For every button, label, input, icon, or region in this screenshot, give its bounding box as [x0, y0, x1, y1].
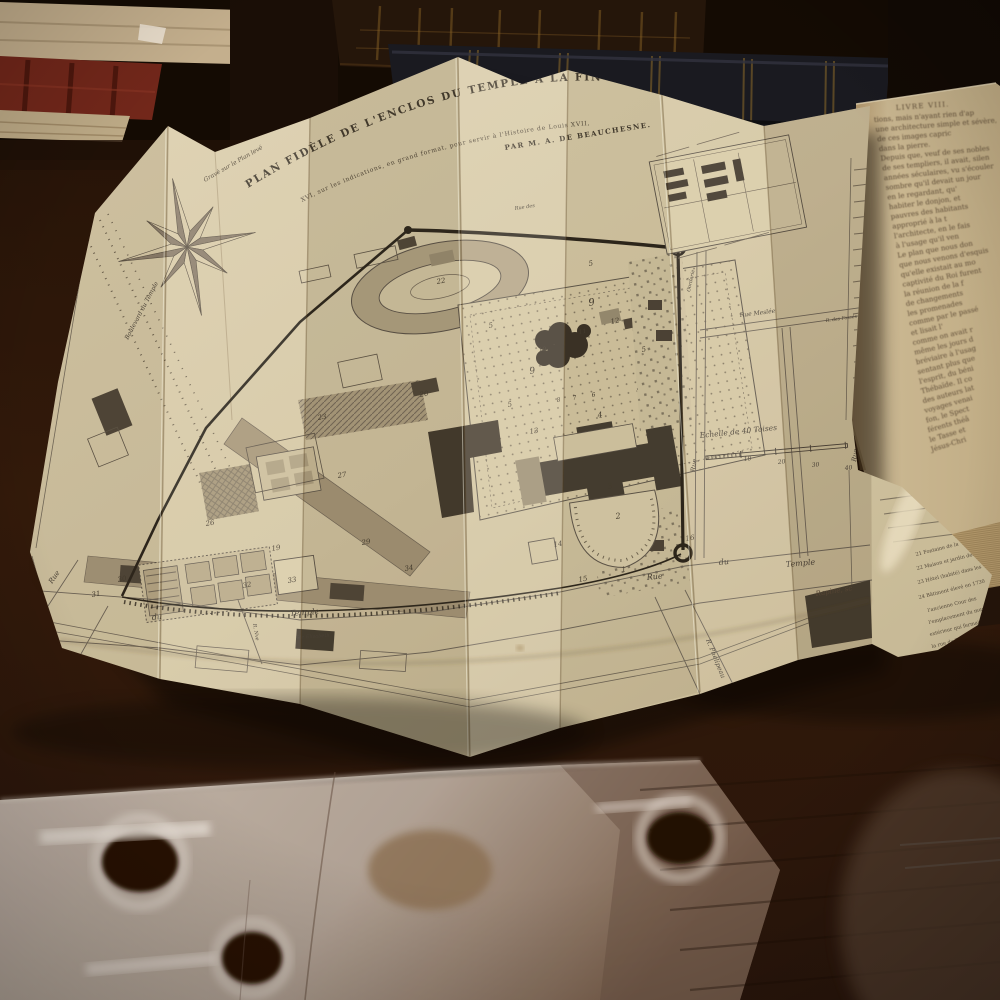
photo-canvas: LIVRE VIII. tions, mais n'ayant rien d'a…	[0, 0, 1000, 1000]
vignette	[0, 0, 1000, 1000]
book-photo: LIVRE VIII. tions, mais n'ayant rien d'a…	[0, 0, 1000, 1000]
